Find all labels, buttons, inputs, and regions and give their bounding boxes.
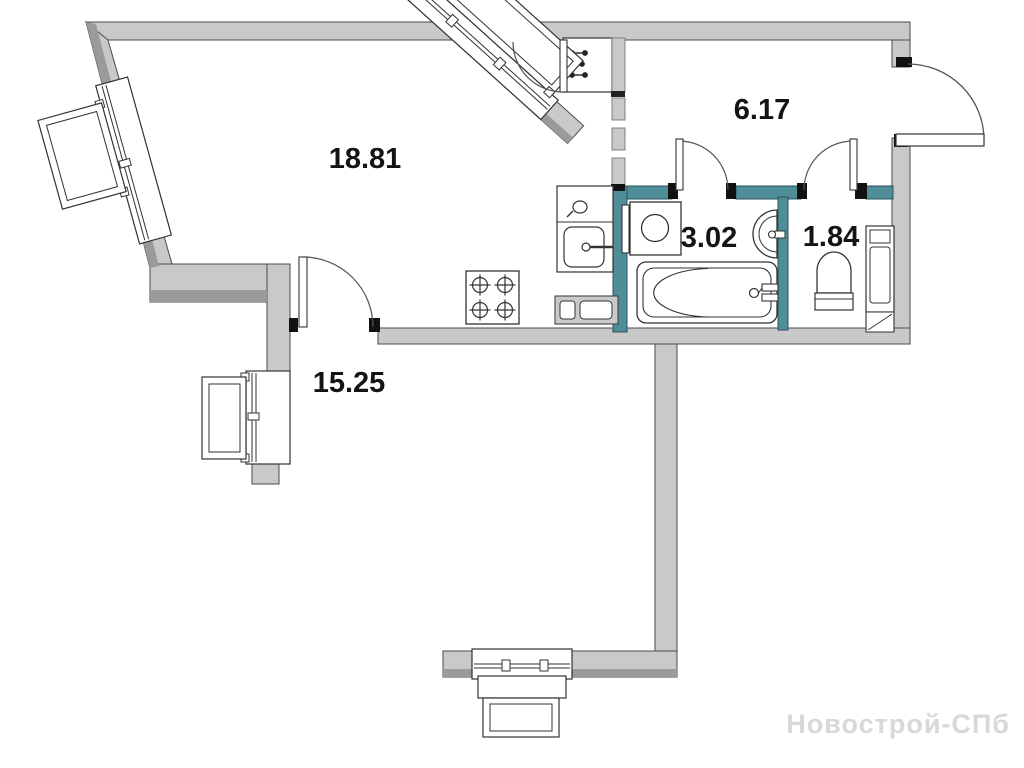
floorplan-canvas: 18.81 6.17 3.02 1.84 15.25 Новострой-СПб [0, 0, 1024, 768]
room-label-kitchen-living: 18.81 [329, 143, 402, 175]
room-label-wc: 1.84 [803, 221, 859, 253]
window-top-left-icon [33, 77, 171, 261]
window-bottom-icon [472, 649, 572, 737]
floorplan-page: 18.81 6.17 3.02 1.84 15.25 Новострой-СПб [0, 0, 1024, 768]
watermark-text: Новострой-СПб [786, 709, 1010, 739]
shaft-junction-tick [611, 91, 625, 97]
entrance-door [896, 64, 984, 146]
bathroom-door-swing [676, 139, 728, 190]
toilet-icon [815, 252, 853, 310]
kitchen-sink-icon [557, 186, 613, 272]
room-label-hallway: 6.17 [734, 94, 790, 126]
open-plan-boundary [612, 38, 625, 188]
bathtub-icon [637, 262, 778, 323]
water-heater-icon [866, 226, 894, 332]
stove-icon [466, 271, 519, 324]
room-label-bathroom: 3.02 [681, 222, 737, 254]
room-door-swing [299, 257, 373, 327]
kitchen-cabinet-icon [555, 296, 618, 324]
room-label-bedroom: 15.25 [313, 367, 386, 399]
washing-machine-icon [622, 202, 681, 255]
window-left-icon [202, 371, 290, 464]
wall-shadows [86, 22, 677, 677]
wc-door-swing [804, 139, 857, 190]
